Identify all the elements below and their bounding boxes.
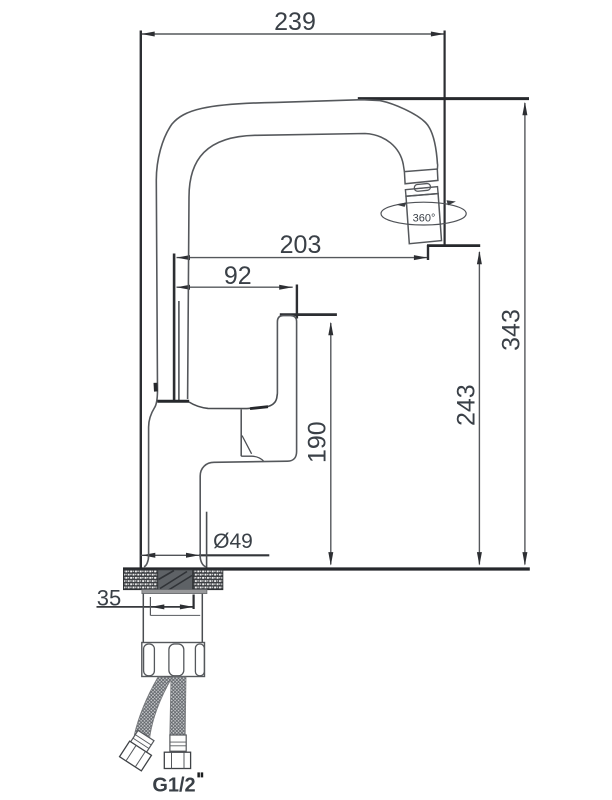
svg-text:239: 239 (274, 8, 316, 36)
svg-text:Ø49: Ø49 (213, 530, 253, 553)
svg-text:G1/2: G1/2 (152, 775, 195, 797)
svg-text:190: 190 (304, 421, 332, 463)
svg-text:203: 203 (280, 231, 322, 259)
svg-text:243: 243 (453, 384, 481, 426)
svg-text:360°: 360° (413, 213, 436, 225)
svg-text:92: 92 (224, 262, 252, 290)
svg-text:343: 343 (498, 309, 526, 351)
